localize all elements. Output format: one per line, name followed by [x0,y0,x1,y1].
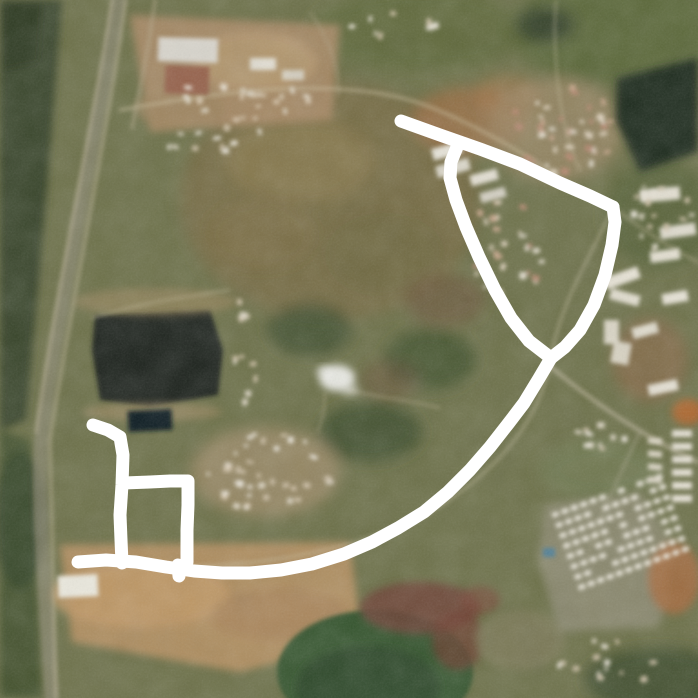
satellite-imagery [0,0,698,698]
map-canvas [0,0,698,698]
satellite-map-view[interactable] [0,0,698,698]
route-stroke-bottom-nub [178,565,179,576]
